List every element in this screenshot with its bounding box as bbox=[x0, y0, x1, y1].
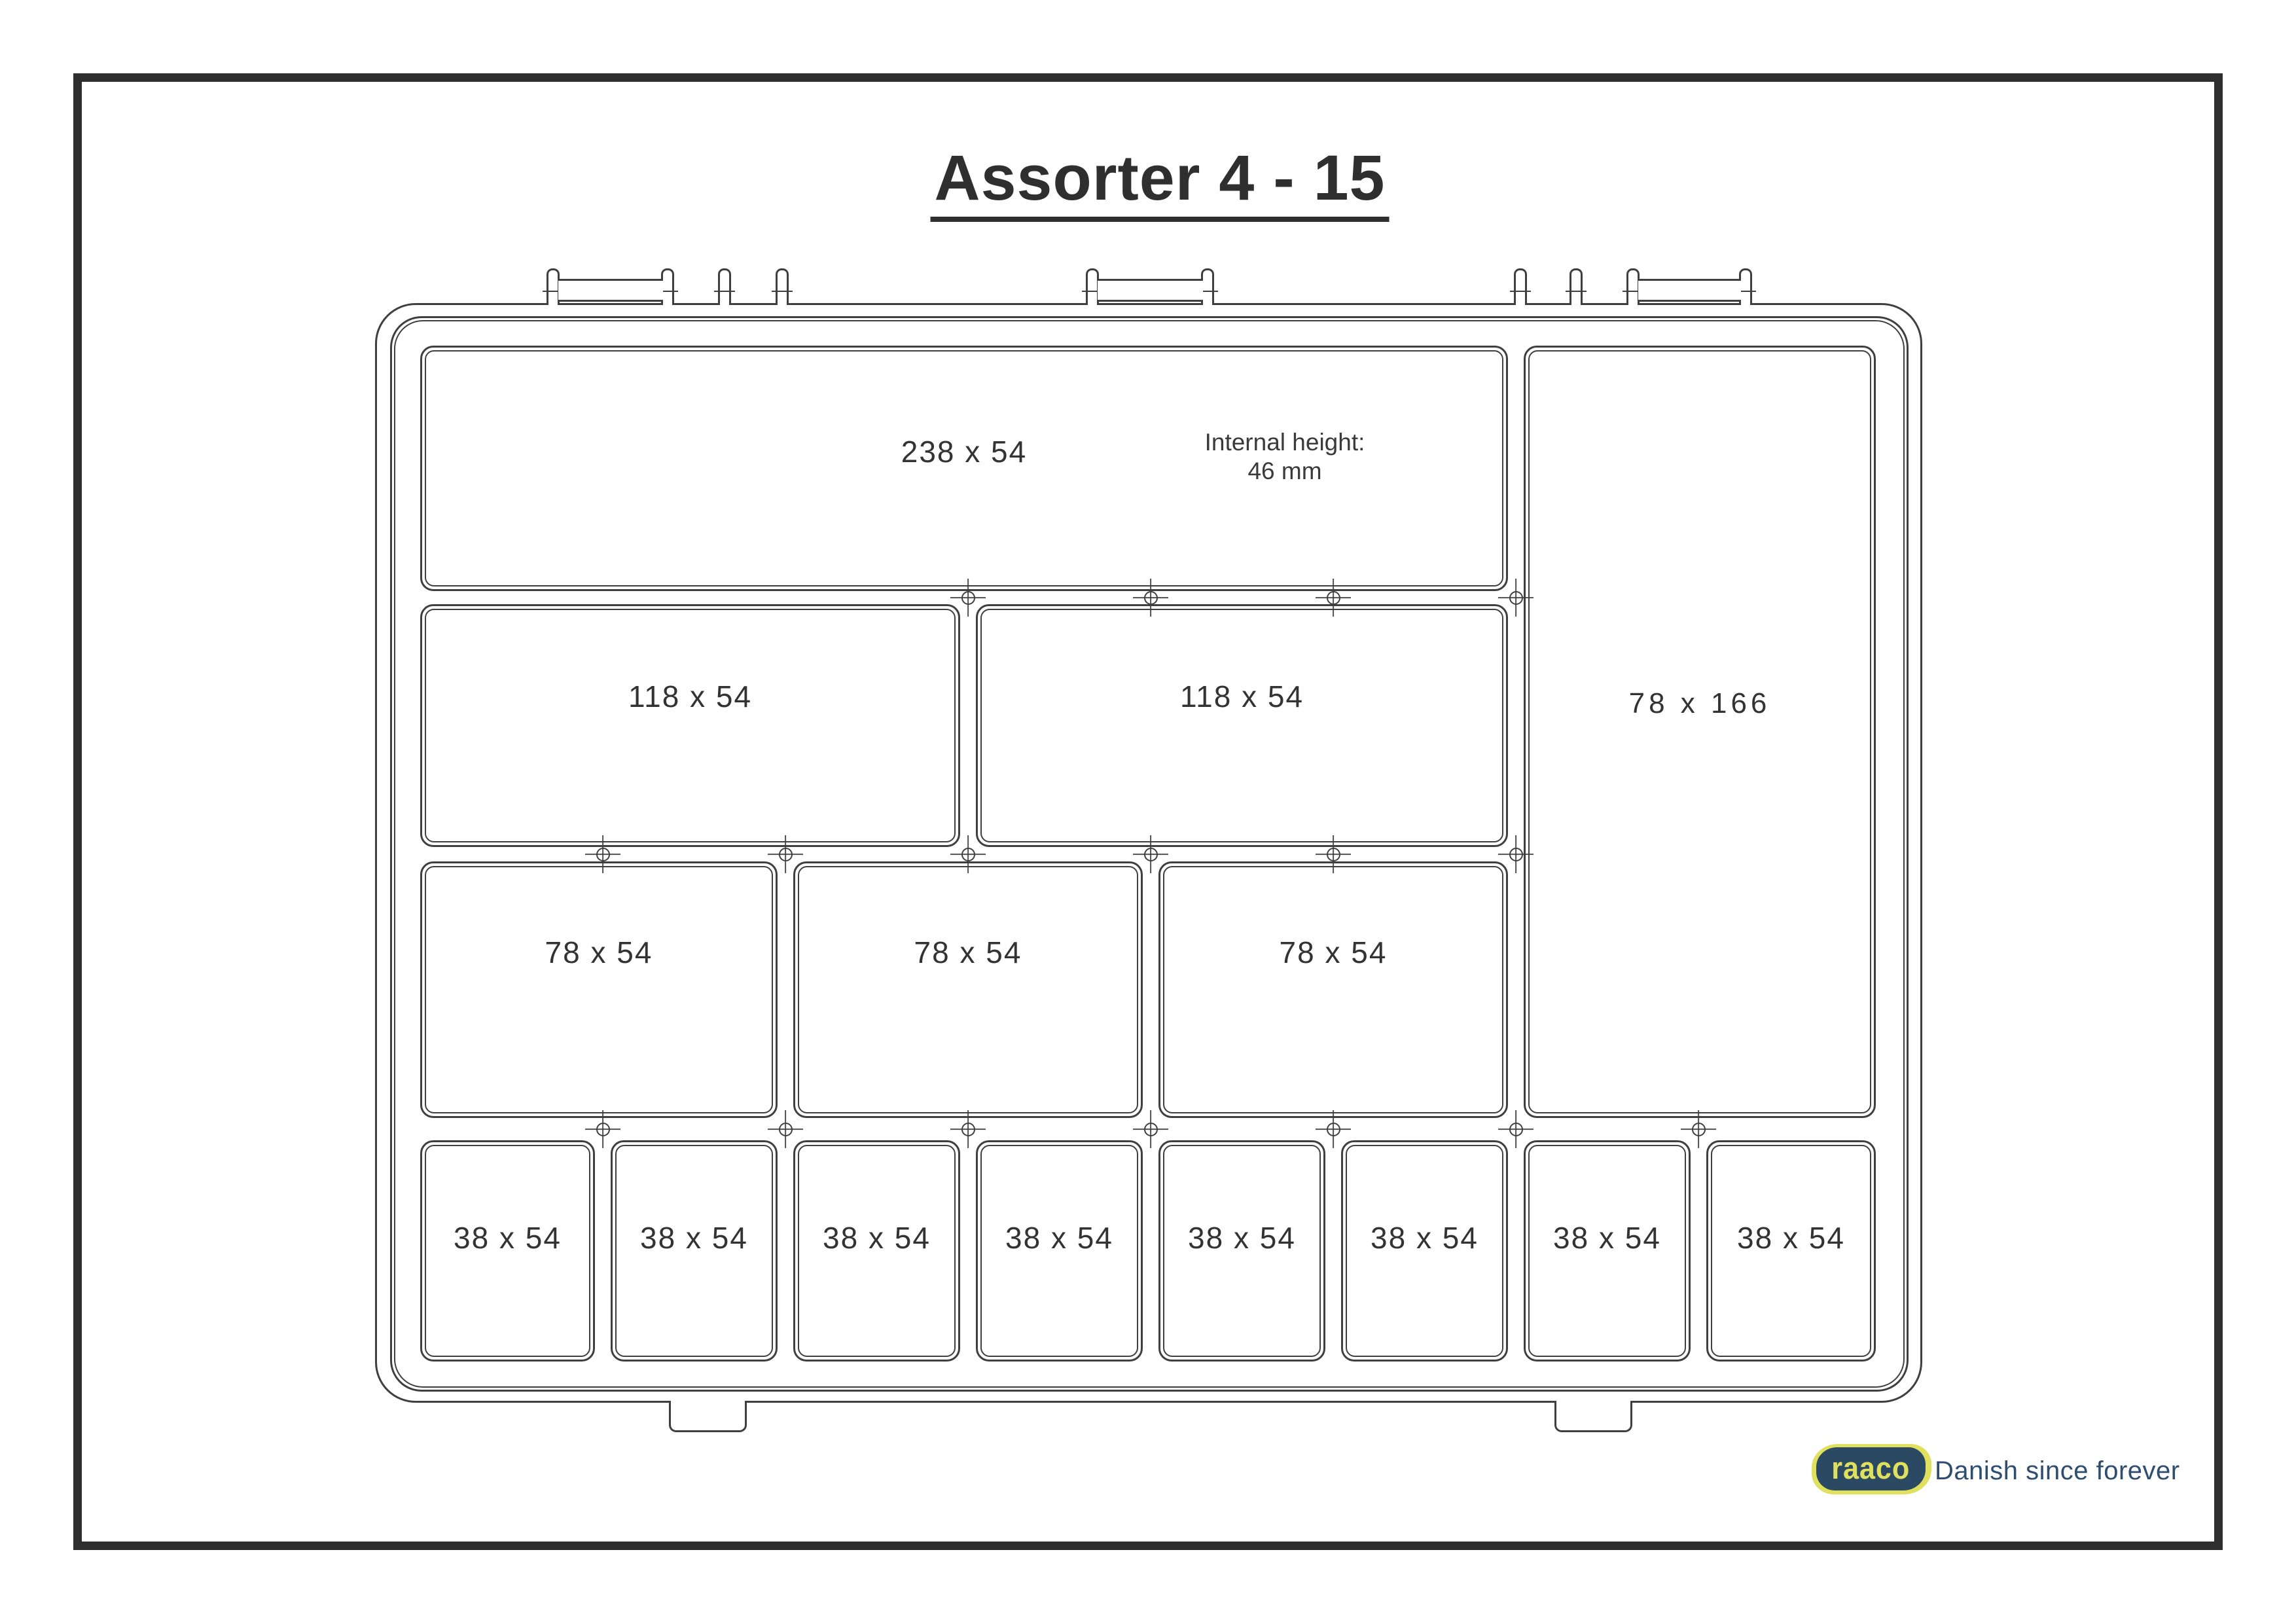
compartment-dimension-label: 38 x 54 bbox=[795, 1221, 958, 1255]
compartment-dimension-label: 78 x 54 bbox=[1160, 935, 1506, 969]
raaco-logo: raaco bbox=[1812, 1444, 1931, 1494]
compartment-dimension-label: 38 x 54 bbox=[978, 1221, 1141, 1255]
compartment-dimension-label: 38 x 54 bbox=[1526, 1221, 1689, 1255]
compartment: 38 x 54 bbox=[611, 1140, 778, 1362]
internal-height-label: Internal height: bbox=[1154, 428, 1416, 457]
compartment-dimension-label: 38 x 54 bbox=[1708, 1221, 1874, 1255]
divider-slot-marker bbox=[596, 1123, 610, 1136]
compartment-dimension-label: 118 x 54 bbox=[978, 679, 1506, 713]
handle-bar bbox=[558, 279, 663, 302]
compartment: 118 x 54 bbox=[420, 604, 960, 847]
lid-tab bbox=[547, 268, 560, 305]
divider-slot-marker bbox=[596, 848, 610, 861]
lid-tab bbox=[1739, 268, 1752, 305]
compartment: 118 x 54 bbox=[976, 604, 1508, 847]
compartment-dimension-label: 78 x 54 bbox=[422, 935, 776, 969]
compartment-dimension-label: 78 x 166 bbox=[1526, 687, 1874, 721]
raaco-logo-text: raaco bbox=[1831, 1453, 1910, 1486]
compartment: 38 x 54 bbox=[1524, 1140, 1691, 1362]
compartment: 38 x 54 bbox=[793, 1140, 960, 1362]
handle-bar bbox=[1638, 279, 1741, 302]
compartment: 78 x 54 bbox=[793, 861, 1143, 1118]
lid-tab bbox=[1201, 268, 1214, 305]
divider-slot-marker bbox=[1144, 1123, 1158, 1136]
handle-bar bbox=[1098, 279, 1203, 302]
lid-tab bbox=[1514, 268, 1527, 305]
divider-slot-marker bbox=[779, 1123, 793, 1136]
divider-slot-marker bbox=[1509, 591, 1523, 605]
compartment-dimension-label: 38 x 54 bbox=[1160, 1221, 1323, 1255]
compartment-dimension-label: 78 x 54 bbox=[795, 935, 1141, 969]
internal-height-note: Internal height: 46 mm bbox=[1154, 428, 1416, 486]
divider-slot-marker bbox=[961, 848, 975, 861]
lid-tab bbox=[1086, 268, 1099, 305]
lid-tab bbox=[776, 268, 789, 305]
compartment: 78 x 166 bbox=[1524, 346, 1876, 1118]
divider-slot-marker bbox=[1144, 848, 1158, 861]
case-foot bbox=[669, 1401, 747, 1432]
divider-slot-marker bbox=[779, 848, 793, 861]
divider-slot-marker bbox=[1327, 591, 1340, 605]
raaco-logo-badge: raaco bbox=[1816, 1447, 1926, 1490]
compartment: 38 x 54 bbox=[1341, 1140, 1508, 1362]
divider-slot-marker bbox=[1327, 1123, 1340, 1136]
divider-slot-marker bbox=[961, 591, 975, 605]
compartment-dimension-label: 38 x 54 bbox=[1343, 1221, 1506, 1255]
lid-tab bbox=[661, 268, 674, 305]
compartment: 38 x 54 bbox=[976, 1140, 1143, 1362]
divider-slot-marker bbox=[961, 1123, 975, 1136]
lid-tab bbox=[1570, 268, 1583, 305]
lid-tab bbox=[1626, 268, 1640, 305]
compartment: 38 x 54 bbox=[1158, 1140, 1325, 1362]
datasheet-page: Assorter 4 - 15 238 x 5478 x 166118 x 54… bbox=[0, 0, 2296, 1624]
compartment: 78 x 54 bbox=[420, 861, 778, 1118]
compartment: 38 x 54 bbox=[1706, 1140, 1876, 1362]
compartment: 38 x 54 bbox=[420, 1140, 595, 1362]
divider-slot-marker bbox=[1509, 848, 1523, 861]
case-foot bbox=[1554, 1401, 1632, 1432]
compartment-dimension-label: 118 x 54 bbox=[422, 679, 958, 713]
brand-tagline: Danish since forever bbox=[1935, 1456, 2180, 1485]
compartment-dimension-label: 38 x 54 bbox=[422, 1221, 593, 1255]
divider-slot-marker bbox=[1509, 1123, 1523, 1136]
compartment-dimension-label: 38 x 54 bbox=[613, 1221, 776, 1255]
divider-slot-marker bbox=[1144, 591, 1158, 605]
page-title: Assorter 4 - 15 bbox=[931, 145, 1390, 222]
divider-slot-marker bbox=[1692, 1123, 1706, 1136]
lid-tab bbox=[718, 268, 731, 305]
divider-slot-marker bbox=[1327, 848, 1340, 861]
compartment: 78 x 54 bbox=[1158, 861, 1508, 1118]
internal-height-value: 46 mm bbox=[1154, 457, 1416, 486]
